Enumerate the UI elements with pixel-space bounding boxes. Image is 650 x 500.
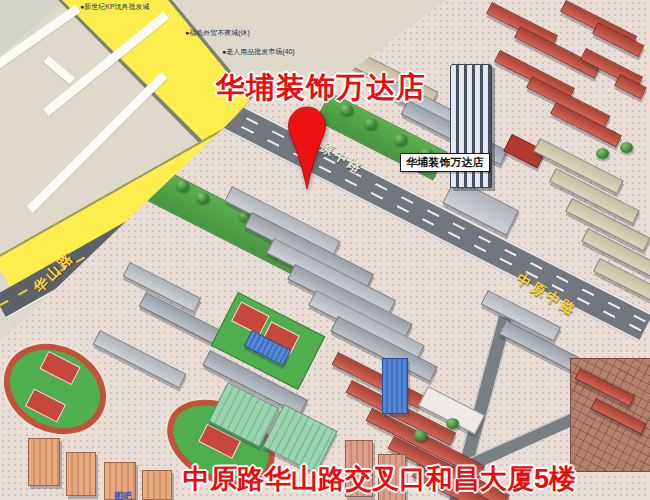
tree-icon: [196, 192, 209, 203]
tree-icon: [364, 118, 377, 129]
building-block: [142, 470, 172, 500]
tree-icon: [394, 134, 407, 145]
tree-icon: [414, 430, 427, 441]
blue-tower: [382, 358, 408, 414]
building-block: [66, 452, 96, 496]
map-canvas[interactable]: ●新世纪KP玩具批发城 ●福临外贸不夜城(休) ●老人用品批发市场(40) 华山…: [0, 0, 650, 500]
tree-icon: [446, 418, 459, 429]
page-title: 华埔装饰万达店: [216, 68, 426, 108]
address-caption: 中原路华山路交叉口和昌大厦5楼: [183, 461, 576, 497]
building-block: [28, 438, 60, 486]
watermark: 图吧: [114, 490, 132, 500]
marker-label-box[interactable]: 华埔装饰万达店: [400, 153, 490, 172]
poi-label: ●老人用品批发市场(40): [222, 47, 295, 57]
location-pin-icon[interactable]: [288, 106, 326, 190]
poi-label: ●福临外贸不夜城(休): [185, 28, 250, 38]
tree-icon: [176, 180, 189, 191]
minor-street: [43, 56, 74, 84]
poi-label: ●新世纪KP玩具批发城: [80, 2, 150, 12]
tree-icon: [596, 148, 609, 159]
tree-icon: [620, 142, 633, 153]
